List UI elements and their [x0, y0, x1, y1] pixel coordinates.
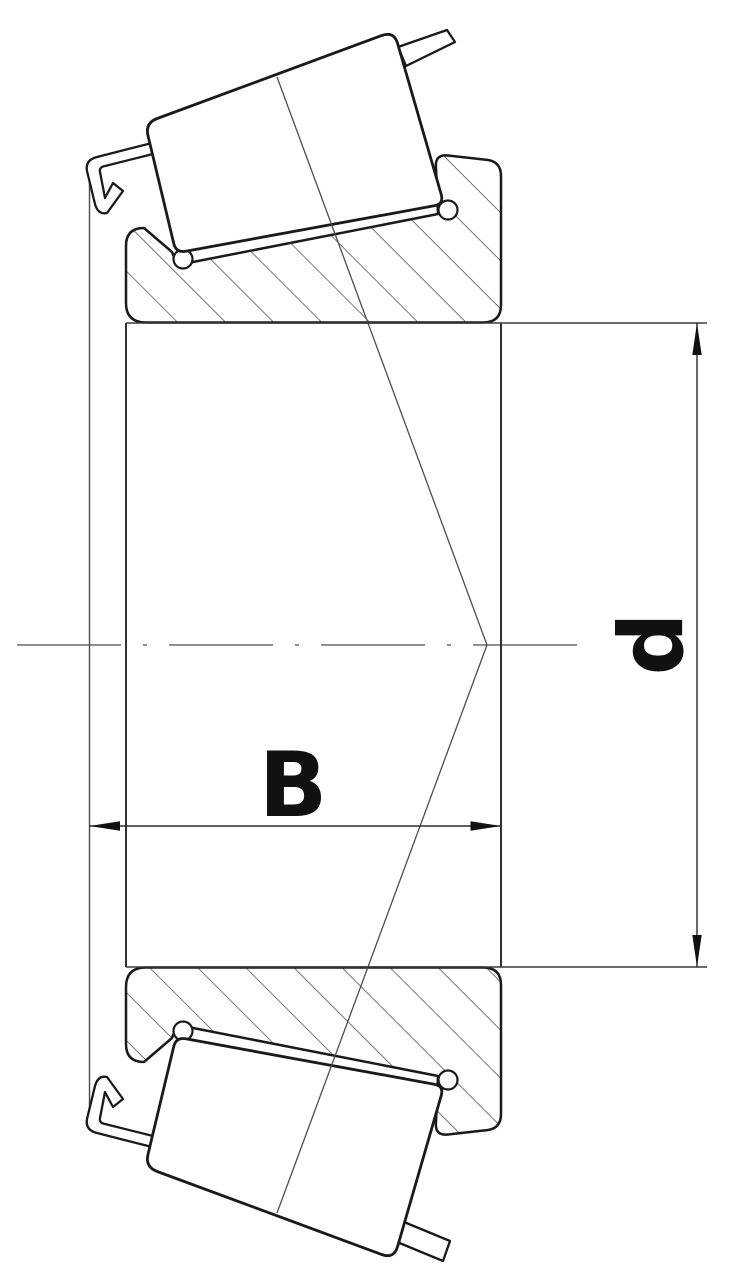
drawing-canvas: B d	[0, 0, 742, 1280]
dimension-bore-d: d	[600, 323, 703, 967]
bore-dimension-label: d	[600, 613, 703, 676]
tapered-roller-bottom	[147, 1039, 441, 1256]
arrowhead-right	[471, 821, 502, 831]
cage-hook-top	[87, 143, 153, 213]
arrowhead-up	[692, 323, 701, 355]
bearing-section-drawing: B d	[0, 0, 742, 1280]
arrowhead-left	[90, 821, 121, 831]
cage-hook-bottom	[87, 1077, 153, 1147]
arrowhead-down	[692, 935, 701, 967]
width-dimension-label: B	[259, 733, 328, 838]
tapered-roller-top	[147, 34, 441, 251]
cage-bar-top	[398, 30, 455, 66]
cage-bar-bottom	[397, 1222, 450, 1261]
dimension-width-B: B	[90, 733, 502, 838]
